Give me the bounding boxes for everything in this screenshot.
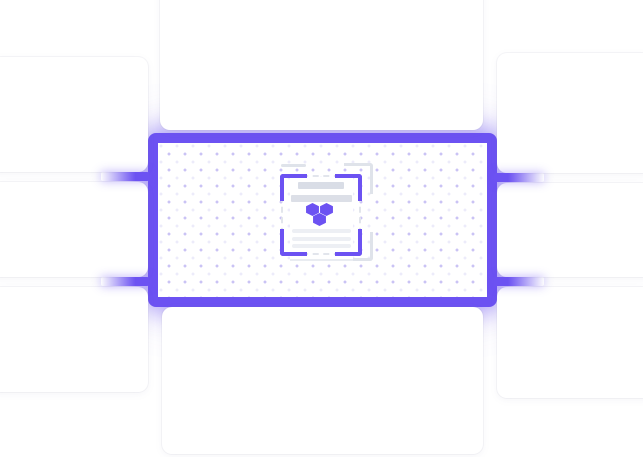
document-scan-icon [277, 163, 374, 262]
card-right-bottom [497, 287, 643, 398]
scan-corner-brackets [280, 174, 362, 256]
scan-bracket-bottom-left-icon [280, 229, 307, 256]
gray-bracket-top-left-icon [281, 164, 306, 167]
card-right-middle [497, 183, 643, 277]
card-right-top [497, 53, 643, 173]
card-left-bottom [0, 287, 148, 392]
illustration-canvas [0, 0, 643, 457]
card-left-top [0, 57, 148, 172]
scan-bracket-top-right-icon [335, 174, 362, 201]
center-panel [148, 133, 497, 307]
connector-right-top [494, 173, 544, 182]
connector-left-bottom [101, 277, 149, 286]
scan-bracket-top-left-icon [280, 174, 307, 201]
card-left-middle [0, 182, 148, 277]
card-top-center [160, 0, 483, 130]
scan-bracket-bottom-right-icon [335, 229, 362, 256]
connector-right-bottom [494, 277, 544, 286]
card-bottom-center [162, 307, 483, 454]
connector-left-top [101, 172, 149, 181]
